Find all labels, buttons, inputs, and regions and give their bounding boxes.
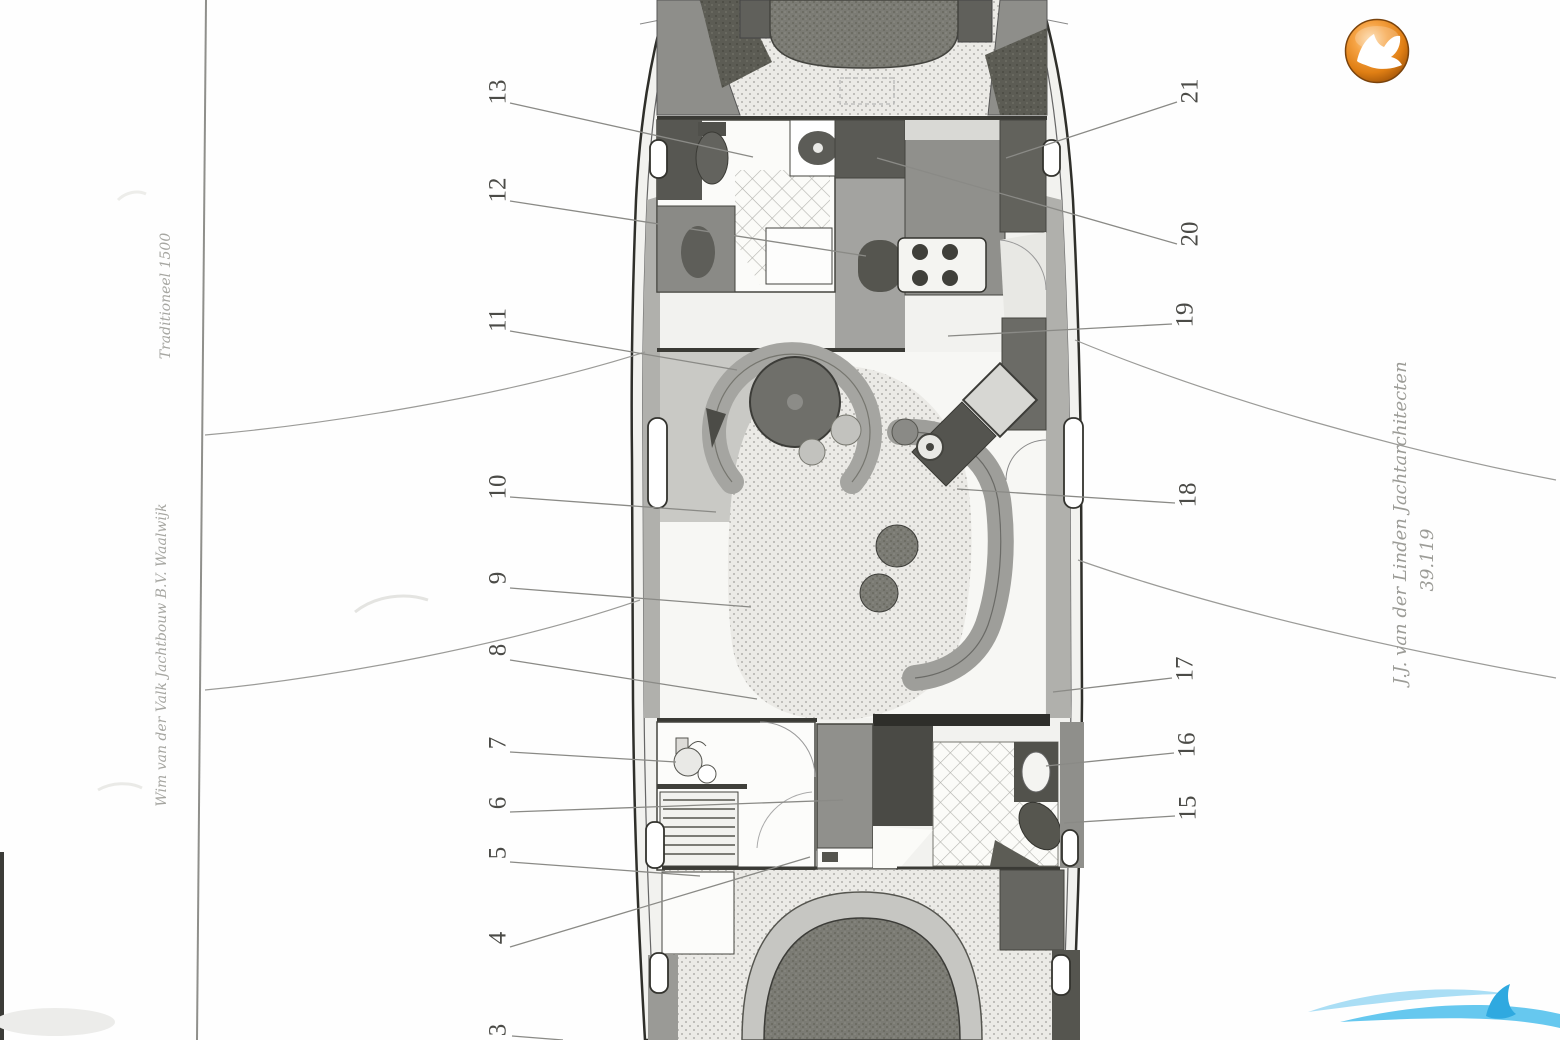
companionway [817, 724, 873, 850]
callout-9: 9 [485, 572, 512, 585]
callout-17: 17 [1172, 657, 1199, 682]
porthole [1062, 830, 1078, 866]
galley-counter-end [858, 240, 902, 292]
stove-burner [912, 244, 928, 260]
left-margin-model-text: Traditioneel 1500 [158, 233, 174, 360]
porthole [1052, 955, 1070, 995]
salon-stool [860, 574, 898, 612]
callout-13: 13 [485, 80, 512, 105]
galley-worktop [905, 120, 1003, 140]
sink-small [698, 765, 716, 783]
saloon-window-port [648, 418, 667, 508]
toilet [696, 132, 728, 184]
step-fitting [822, 852, 838, 862]
orange-falcon-sphere-logo [1346, 20, 1409, 83]
scan-edge-shadow [0, 852, 4, 1040]
blue-wave-swoosh-watermark [1308, 984, 1560, 1028]
callout-3-leader [512, 1036, 563, 1040]
aft-washbasin [1022, 752, 1050, 792]
watermark-fin [1486, 984, 1516, 1019]
forward-cabin [657, 0, 1047, 118]
scan-smudge [355, 596, 428, 612]
callout-20: 20 [1177, 222, 1204, 247]
corridor-cabinet [835, 120, 905, 178]
nightstand [740, 0, 770, 38]
right-margin-drawing-number: 39.119 [1417, 529, 1438, 592]
porthole [650, 953, 668, 993]
boat-floor-plan-drawing: Traditioneel 1500 Wim van der Valk Jacht… [0, 0, 1560, 1040]
saloon-window-starboard [1064, 418, 1083, 508]
salon-stool [876, 525, 918, 567]
callout-7: 7 [485, 737, 512, 750]
companion-stairs [660, 792, 738, 866]
callout-15: 15 [1175, 796, 1202, 821]
callout-3: 3 [485, 1024, 512, 1037]
stove-burner [912, 270, 928, 286]
callout-16: 16 [1174, 733, 1201, 758]
scanned-deck-plan-page: Traditioneel 1500 Wim van der Valk Jacht… [0, 0, 1560, 1040]
dinette-table-base [787, 394, 803, 410]
aft-cabinet [662, 872, 734, 954]
callout-10: 10 [485, 475, 512, 500]
galley-tall-cabinet [1000, 120, 1046, 232]
callout-6: 6 [485, 797, 512, 810]
stove-burner [942, 270, 958, 286]
salon-chair [831, 415, 861, 445]
nightstand [958, 0, 992, 42]
callout-8: 8 [485, 644, 512, 657]
settee-armrest [892, 419, 918, 445]
aft-wardrobe-starboard [1000, 870, 1064, 950]
stove-burner [942, 244, 958, 260]
callout-11: 11 [485, 308, 512, 332]
scan-smudge [0, 1008, 115, 1036]
cabinet-basin [681, 226, 715, 278]
salon [657, 318, 1050, 726]
callout-12: 12 [485, 178, 512, 203]
galley-stove [898, 238, 986, 292]
shower-tray [766, 228, 832, 284]
forward-cabin-bed [770, 0, 958, 68]
aft-cabin [648, 868, 1080, 1040]
callout-18: 18 [1175, 483, 1202, 508]
right-margin-architect-text: J.J. van der Linden Jachtarchitecten [1390, 361, 1411, 688]
scan-margin-line [197, 0, 206, 1040]
pantry-floor [1000, 232, 1046, 330]
callout-4: 4 [485, 931, 512, 944]
callout-5: 5 [485, 847, 512, 860]
counter-edge [657, 784, 747, 789]
scan-smudge [118, 192, 146, 200]
salon-chair [799, 439, 825, 465]
callout-19: 19 [1172, 303, 1199, 328]
aft-bulkhead-wall [873, 714, 1050, 726]
washbasin-drain [813, 143, 823, 153]
callout-21: 21 [1177, 79, 1204, 104]
aft-wardrobe [873, 726, 933, 826]
porthole [646, 822, 664, 868]
porthole [650, 140, 667, 178]
left-margin-yard-text: Wim van der Valk Jachtbouw B.V. Waalwijk [154, 503, 170, 806]
scan-smudge [98, 784, 142, 790]
helm-wheel-hub [926, 443, 934, 451]
watermark-wave [1340, 1005, 1560, 1028]
